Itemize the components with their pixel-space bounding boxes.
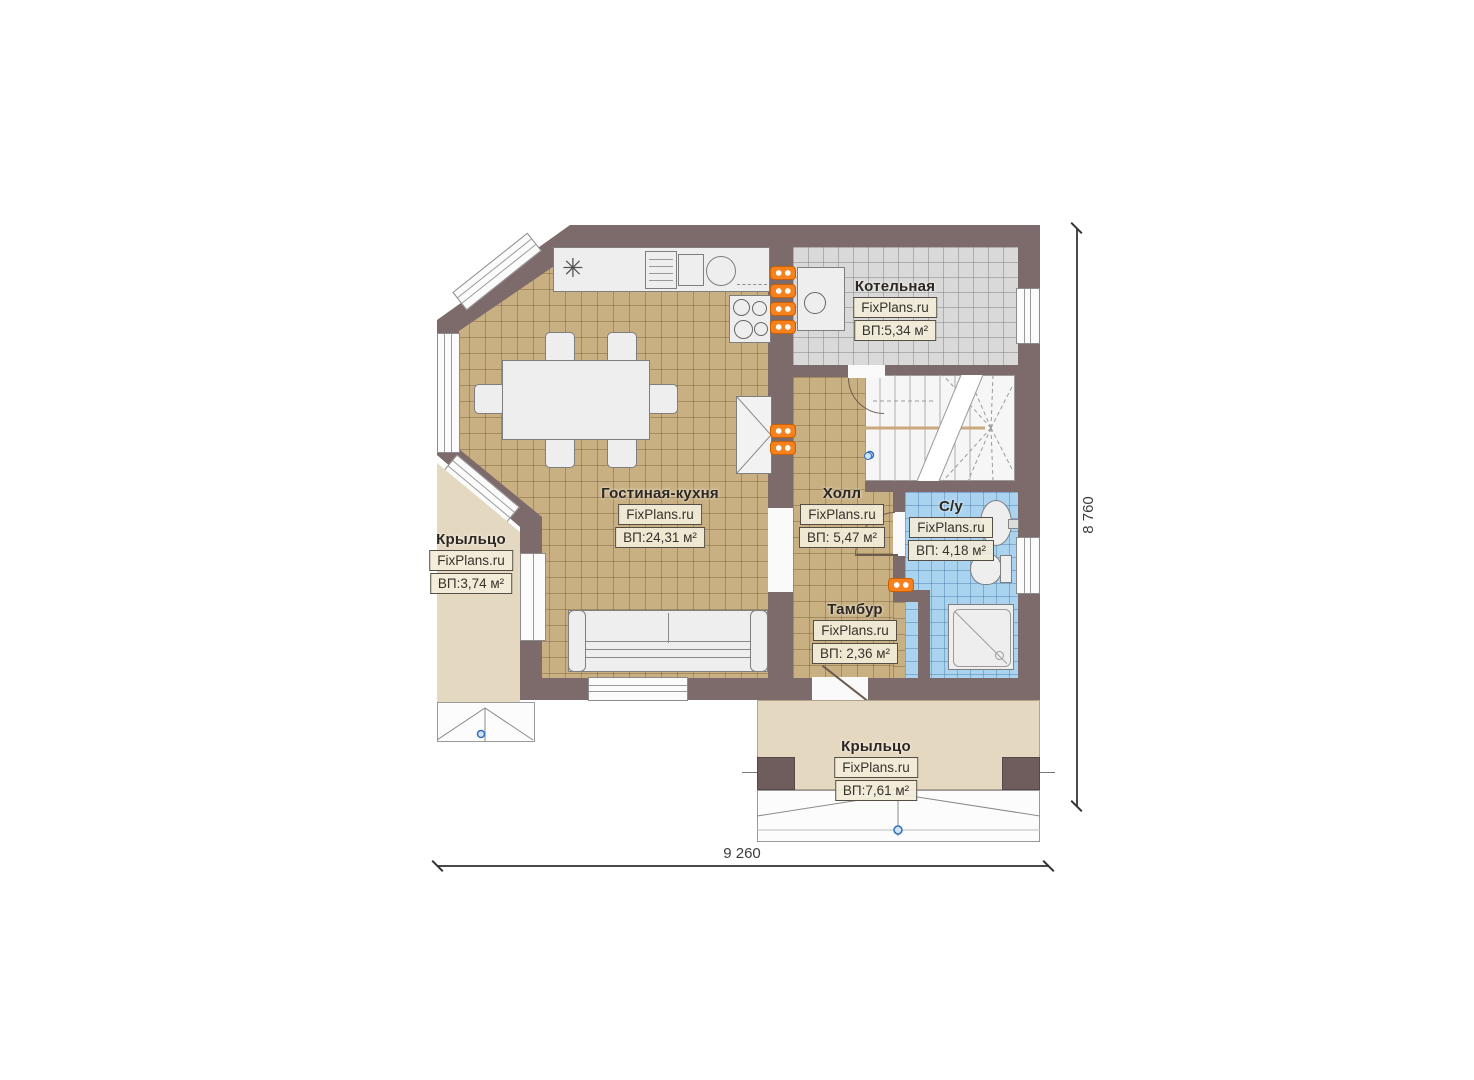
dining-chair: [545, 436, 575, 468]
radiator-symbol: [770, 302, 796, 316]
round-sink-symbol: [706, 256, 736, 286]
room-name: Гостиная-кухня: [601, 485, 719, 502]
door-opening-boiler-hall: [848, 365, 885, 378]
boiler-symbol: [797, 267, 845, 331]
dimension-height-label: 8 760: [1080, 496, 1097, 534]
counter-dashed-edge: [737, 265, 767, 285]
watermark-box: FixPlans.ru: [618, 504, 702, 525]
room-area-box: ВП:7,61 м²: [835, 780, 917, 801]
watermark-box: FixPlans.ru: [429, 550, 513, 571]
door-leaf: [856, 554, 898, 556]
window-bathroom-right: [1016, 537, 1040, 594]
opening-living-hall: [768, 508, 793, 592]
toilet-tank: [1000, 555, 1012, 583]
stairs-symbol: [865, 375, 1015, 481]
room-name: Крыльцо: [841, 738, 911, 755]
stove-symbol: [729, 295, 771, 343]
room-area-box: ВП: 2,36 м²: [812, 643, 898, 664]
room-name: С/у: [939, 498, 963, 515]
sink-drainboard-symbol: [645, 251, 677, 289]
room-label-boiler: Котельная FixPlans.ru ВП:5,34 м²: [853, 278, 937, 341]
room-area-box: ВП:5,34 м²: [854, 320, 936, 341]
room-label-porch-bottom: Крыльцо FixPlans.ru ВП:7,61 м²: [834, 738, 918, 801]
watermark-box: FixPlans.ru: [800, 504, 884, 525]
shower-symbol: [948, 604, 1014, 670]
dimension-line-height: [1076, 228, 1078, 806]
room-name: Холл: [823, 485, 861, 502]
room-area-box: ВП:24,31 м²: [615, 527, 705, 548]
room-label-porch-left: Крыльцо FixPlans.ru ВП:3,74 м²: [429, 531, 513, 594]
dining-chair: [607, 436, 637, 468]
room-area-box: ВП:3,74 м²: [430, 573, 512, 594]
sink-basin-symbol: [678, 254, 704, 286]
wall-tambour-stub-v: [918, 590, 930, 678]
vent-star-icon: ✳: [562, 253, 584, 283]
door-living-porch: [520, 553, 546, 641]
sofa-symbol: [568, 610, 768, 672]
window-bay-left: [437, 333, 460, 453]
window-living-bottom: [588, 677, 688, 701]
room-area-box: ВП: 4,18 м²: [908, 540, 994, 561]
survey-point-marker: [864, 452, 872, 460]
extension-tick: [742, 772, 757, 773]
extension-tick: [1040, 772, 1055, 773]
watermark-box: FixPlans.ru: [853, 297, 937, 318]
room-name: Крыльцо: [436, 531, 506, 548]
radiator-symbol: [770, 424, 796, 438]
watermark-box: FixPlans.ru: [909, 517, 993, 538]
room-label-bathroom: С/у FixPlans.ru ВП: 4,18 м²: [908, 498, 994, 561]
room-name: Котельная: [855, 278, 935, 295]
dining-chair: [646, 384, 678, 414]
room-label-hall: Холл FixPlans.ru ВП: 5,47 м²: [799, 485, 885, 548]
window-boiler-right: [1016, 288, 1040, 344]
watermark-box: FixPlans.ru: [813, 620, 897, 641]
dimension-width-label: 9 260: [723, 845, 761, 862]
radiator-symbol: [888, 578, 914, 592]
radiator-symbol: [770, 441, 796, 455]
porch-pillar: [1002, 757, 1040, 790]
washbasin-tap: [1008, 519, 1019, 529]
dimension-line-width: [437, 865, 1049, 867]
porch-left-steps-symbol: [437, 702, 535, 742]
dining-table-symbol: [502, 360, 650, 440]
room-area-box: ВП: 5,47 м²: [799, 527, 885, 548]
floor-plan-canvas: ✳: [0, 0, 1474, 1080]
ventilation-shaft-symbol: [736, 396, 772, 474]
wall-stairs-bathroom: [865, 480, 1018, 492]
room-label-living-kitchen: Гостиная-кухня FixPlans.ru ВП:24,31 м²: [601, 485, 719, 548]
radiator-symbol: [770, 320, 796, 334]
watermark-box: FixPlans.ru: [834, 757, 918, 778]
room-name: Тамбур: [827, 601, 883, 618]
porch-pillar: [757, 757, 795, 790]
radiator-symbol: [770, 284, 796, 298]
radiator-symbol: [770, 266, 796, 280]
room-label-tambour: Тамбур FixPlans.ru ВП: 2,36 м²: [812, 601, 898, 664]
